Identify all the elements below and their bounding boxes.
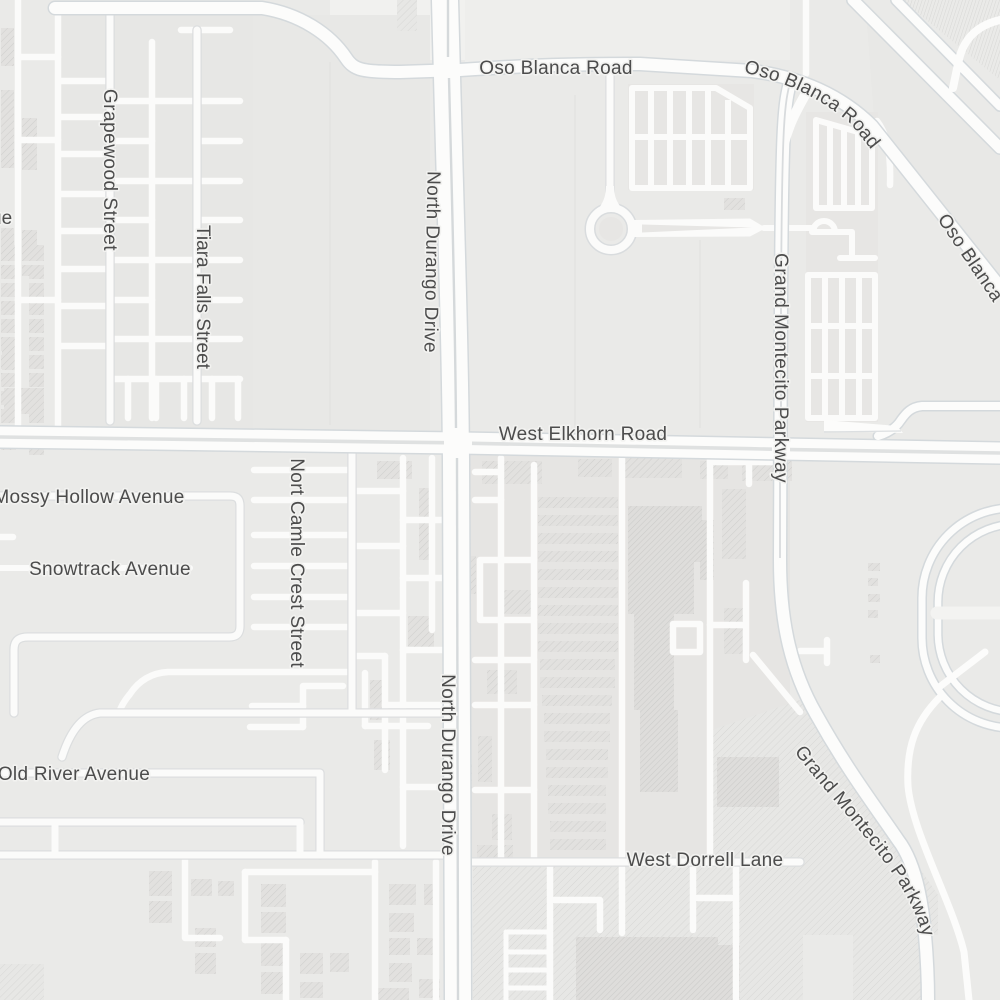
svg-text:Grapewood Street: Grapewood Street (99, 89, 120, 251)
svg-text:North Durango Drive: North Durango Drive (419, 171, 443, 353)
svg-text:Mossy Hollow Avenue: Mossy Hollow Avenue (0, 487, 185, 508)
svg-text:Grand Montecito Parkway: Grand Montecito Parkway (770, 253, 791, 483)
svg-text:West Dorrell Lane: West Dorrell Lane (627, 850, 784, 871)
svg-text:Tiara Falls Street: Tiara Falls Street (192, 225, 213, 370)
svg-text:Oso Blanca Road: Oso Blanca Road (479, 58, 632, 79)
svg-text:Snowtrack Avenue: Snowtrack Avenue (29, 559, 191, 580)
svg-text:Old River Avenue: Old River Avenue (0, 764, 150, 785)
svg-text:North Durango Drive: North Durango Drive (437, 674, 458, 856)
svg-text:ue: ue (0, 208, 12, 229)
svg-text:Nort Camle Crest Street: Nort Camle Crest Street (286, 458, 307, 668)
svg-text:West Elkhorn Road: West Elkhorn Road (499, 424, 667, 445)
